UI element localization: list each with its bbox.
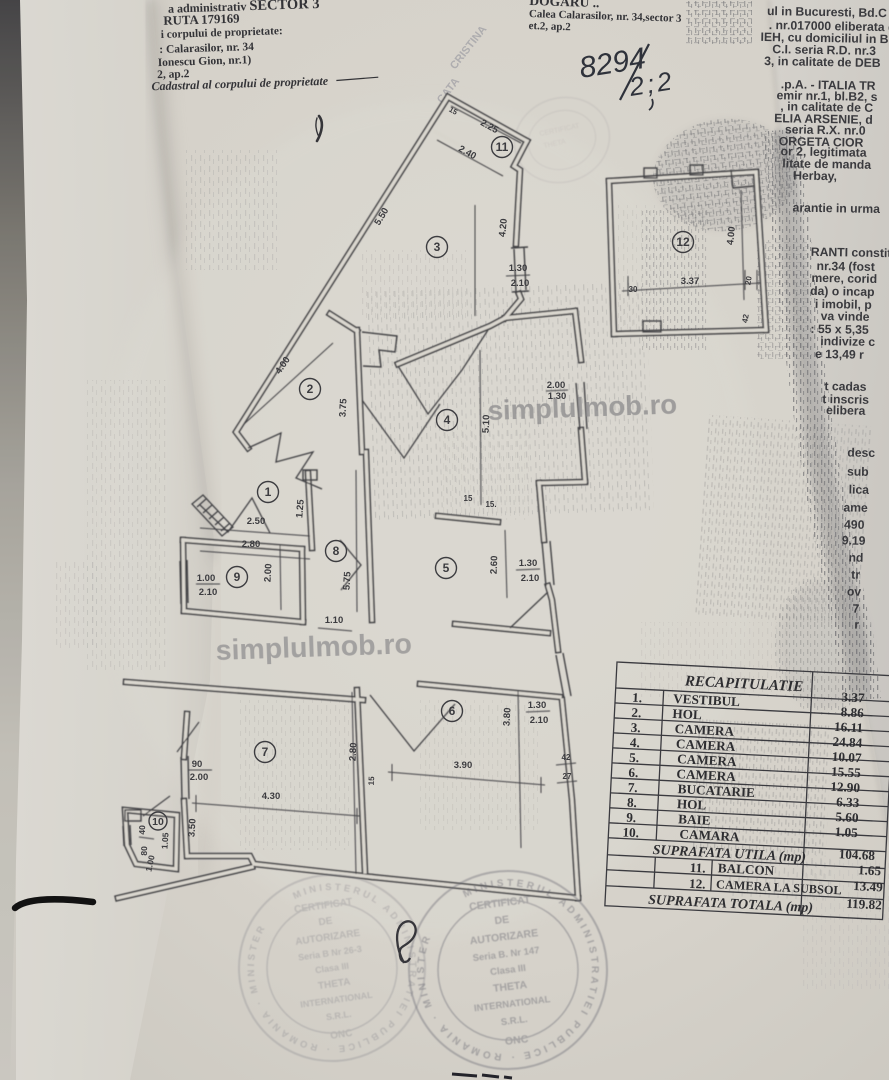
svg-text:DE: DE xyxy=(318,915,334,928)
svg-text:DE: DE xyxy=(494,914,510,928)
